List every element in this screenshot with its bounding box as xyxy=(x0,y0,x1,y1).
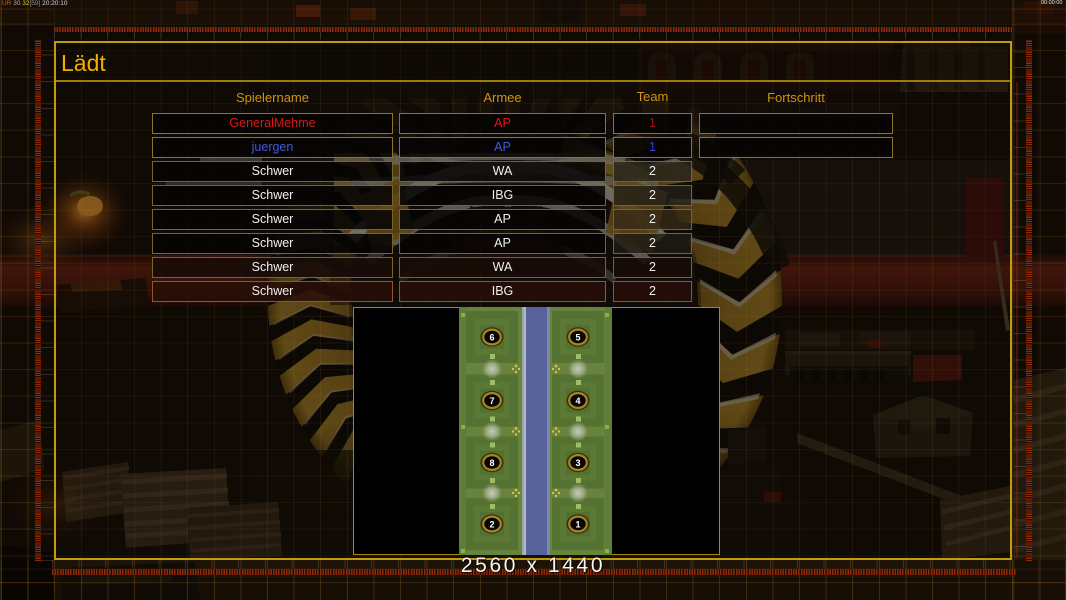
svg-text:1: 1 xyxy=(575,520,580,530)
svg-text:3: 3 xyxy=(575,458,580,468)
svg-text:7: 7 xyxy=(489,396,494,406)
svg-text:8: 8 xyxy=(489,458,494,468)
svg-text:6: 6 xyxy=(489,333,494,343)
svg-text:5: 5 xyxy=(575,333,580,343)
svg-text:4: 4 xyxy=(575,396,580,406)
svg-text:2: 2 xyxy=(489,520,494,530)
